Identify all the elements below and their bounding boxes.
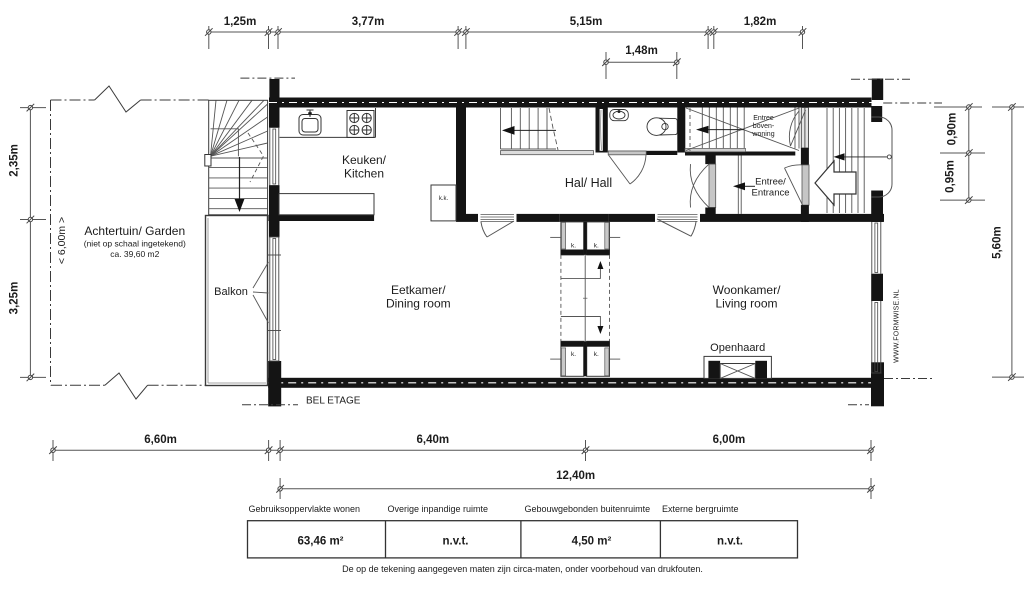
svg-text:boven-: boven- (753, 123, 775, 130)
svg-text:Living room: Living room (715, 297, 777, 311)
svg-text:k.: k. (594, 351, 599, 358)
svg-text:Eetkamer/: Eetkamer/ (391, 283, 446, 297)
svg-text:Entree/: Entree/ (755, 177, 786, 188)
svg-text:k.: k. (571, 243, 576, 250)
svg-text:Externe bergruimte: Externe bergruimte (662, 504, 739, 514)
svg-text:Balkon: Balkon (214, 286, 248, 298)
svg-text:BEL ETAGE: BEL ETAGE (306, 396, 361, 407)
svg-text:63,46 m²: 63,46 m² (297, 536, 343, 548)
svg-text:De op de tekening aangegeven m: De op de tekening aangegeven maten zijn … (342, 564, 703, 574)
svg-text:Hal/ Hall: Hal/ Hall (565, 176, 612, 190)
svg-text:woning: woning (751, 131, 774, 138)
svg-text:6,40m: 6,40m (416, 434, 449, 446)
svg-text:WWW.FORMWISE.NL: WWW.FORMWISE.NL (894, 289, 901, 363)
svg-text:Gebouwgebonden buitenruimte: Gebouwgebonden buitenruimte (525, 504, 651, 514)
svg-text:2,35m: 2,35m (9, 144, 21, 177)
svg-text:Woonkamer/: Woonkamer/ (713, 283, 781, 297)
svg-text:Entree: Entree (753, 115, 774, 122)
svg-text:0,90m: 0,90m (947, 113, 959, 146)
svg-text:3,25m: 3,25m (9, 282, 21, 315)
svg-text:3,77m: 3,77m (352, 16, 385, 28)
svg-text:1,48m: 1,48m (625, 45, 658, 57)
svg-text:5,15m: 5,15m (570, 16, 603, 28)
svg-text:0,95m: 0,95m (945, 160, 957, 193)
svg-text:Dining room: Dining room (386, 297, 451, 311)
svg-text:(niet op schaal ingetekend): (niet op schaal ingetekend) (84, 239, 186, 249)
svg-text:< 6,00m >: < 6,00m > (56, 217, 68, 264)
svg-text:6,60m: 6,60m (144, 434, 177, 446)
svg-text:Achtertuin/ Garden: Achtertuin/ Garden (84, 224, 185, 238)
svg-text:Openhaard: Openhaard (710, 342, 765, 354)
svg-text:Kitchen: Kitchen (344, 167, 384, 181)
svg-text:ca. 39,60 m2: ca. 39,60 m2 (110, 249, 159, 259)
svg-text:6,00m: 6,00m (713, 434, 746, 446)
svg-text:Gebruiksoppervlakte wonen: Gebruiksoppervlakte wonen (249, 504, 361, 514)
svg-text:k.: k. (594, 243, 599, 250)
svg-text:k.: k. (571, 351, 576, 358)
svg-text:n.v.t.: n.v.t. (717, 536, 743, 548)
svg-text:4,50 m²: 4,50 m² (572, 536, 612, 548)
svg-text:Entrance: Entrance (751, 188, 789, 199)
svg-text:n.v.t.: n.v.t. (443, 536, 469, 548)
svg-text:1,82m: 1,82m (744, 16, 777, 28)
svg-text:12,40m: 12,40m (556, 470, 595, 482)
svg-text:Keuken/: Keuken/ (342, 153, 387, 167)
svg-text:5,60m: 5,60m (992, 226, 1004, 259)
svg-text:1,25m: 1,25m (224, 16, 257, 28)
svg-text:Overige inpandige ruimte: Overige inpandige ruimte (388, 504, 489, 514)
svg-text:k.k.: k.k. (439, 196, 449, 202)
